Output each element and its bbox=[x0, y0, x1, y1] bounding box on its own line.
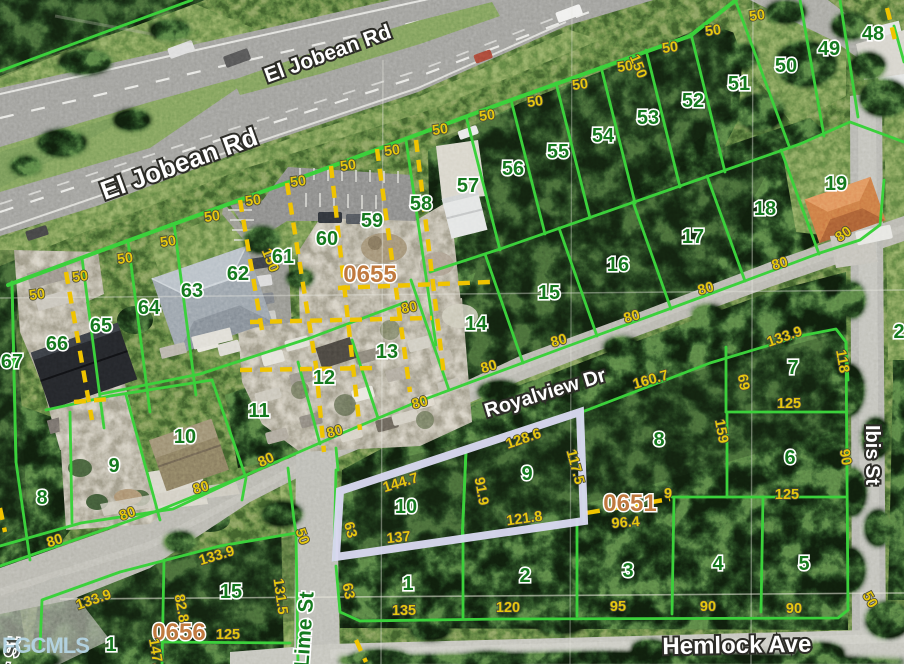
svg-text:12: 12 bbox=[313, 367, 335, 389]
svg-text:15: 15 bbox=[538, 282, 560, 304]
svg-text:57: 57 bbox=[457, 175, 479, 197]
svg-text:1: 1 bbox=[402, 573, 413, 595]
svg-text:50: 50 bbox=[203, 208, 221, 226]
svg-text:60: 60 bbox=[316, 228, 338, 250]
svg-text:67: 67 bbox=[1, 351, 23, 373]
svg-text:1: 1 bbox=[105, 634, 116, 656]
svg-text:6: 6 bbox=[784, 447, 795, 469]
svg-text:7: 7 bbox=[787, 357, 798, 379]
svg-text:52: 52 bbox=[682, 90, 704, 112]
svg-text:65: 65 bbox=[90, 315, 112, 337]
svg-text:8: 8 bbox=[36, 487, 47, 509]
svg-text:120: 120 bbox=[496, 600, 520, 616]
svg-text:53: 53 bbox=[637, 107, 659, 129]
svg-text:15: 15 bbox=[220, 581, 242, 603]
svg-text:0651: 0651 bbox=[603, 490, 656, 517]
svg-text:56: 56 bbox=[502, 158, 524, 180]
svg-text:Lime St: Lime St bbox=[290, 591, 318, 664]
svg-text:9: 9 bbox=[108, 455, 119, 477]
svg-text:80: 80 bbox=[400, 299, 419, 318]
svg-text:125: 125 bbox=[216, 627, 240, 643]
svg-text:50: 50 bbox=[339, 157, 357, 175]
svg-text:50: 50 bbox=[775, 55, 797, 77]
svg-text:54: 54 bbox=[592, 125, 615, 147]
svg-text:96.4: 96.4 bbox=[611, 514, 640, 532]
svg-text:51: 51 bbox=[728, 73, 750, 95]
svg-text:69: 69 bbox=[734, 373, 753, 392]
svg-text:9: 9 bbox=[521, 463, 532, 485]
svg-text:137: 137 bbox=[386, 529, 412, 547]
svg-text:50: 50 bbox=[289, 173, 307, 191]
svg-text:49: 49 bbox=[818, 38, 840, 60]
svg-text:50: 50 bbox=[661, 39, 679, 57]
svg-text:10: 10 bbox=[395, 496, 417, 518]
svg-text:Hemlock Ave: Hemlock Ave bbox=[662, 631, 811, 661]
svg-text:13: 13 bbox=[376, 341, 398, 363]
svg-text:50: 50 bbox=[28, 286, 46, 304]
svg-text:11: 11 bbox=[248, 400, 269, 422]
svg-text:19: 19 bbox=[825, 173, 847, 195]
svg-text:90: 90 bbox=[700, 599, 716, 615]
svg-text:14: 14 bbox=[465, 313, 488, 335]
svg-text:135: 135 bbox=[392, 603, 416, 619]
svg-text:5: 5 bbox=[798, 553, 809, 575]
svg-text:3: 3 bbox=[622, 560, 633, 582]
svg-text:55: 55 bbox=[547, 141, 569, 163]
svg-text:63: 63 bbox=[338, 582, 357, 601]
svg-text:50: 50 bbox=[571, 76, 589, 94]
svg-text:66: 66 bbox=[46, 333, 68, 355]
svg-text:50: 50 bbox=[71, 268, 89, 286]
svg-text:50: 50 bbox=[244, 192, 262, 210]
svg-text:125: 125 bbox=[777, 396, 801, 412]
svg-text:63: 63 bbox=[181, 280, 203, 302]
svg-text:16: 16 bbox=[607, 254, 629, 276]
svg-text:50: 50 bbox=[526, 93, 544, 111]
svg-text:0655: 0655 bbox=[343, 261, 396, 288]
svg-text:90: 90 bbox=[836, 448, 855, 467]
svg-text:50: 50 bbox=[159, 233, 177, 251]
svg-text:59: 59 bbox=[361, 210, 383, 232]
svg-text:50: 50 bbox=[431, 121, 449, 139]
svg-text:2: 2 bbox=[893, 321, 904, 343]
svg-text:8: 8 bbox=[653, 429, 664, 451]
svg-text:64: 64 bbox=[138, 297, 161, 319]
svg-text:50: 50 bbox=[383, 142, 401, 160]
svg-text:50: 50 bbox=[748, 7, 766, 25]
svg-text:48: 48 bbox=[862, 23, 884, 45]
svg-text:50: 50 bbox=[116, 250, 134, 268]
svg-text:58: 58 bbox=[410, 193, 432, 215]
svg-text:9: 9 bbox=[664, 486, 672, 502]
svg-text:61: 61 bbox=[272, 246, 294, 268]
svg-text:95: 95 bbox=[610, 599, 626, 615]
svg-text:17: 17 bbox=[682, 226, 704, 248]
svg-text:Ibis St: Ibis St bbox=[861, 425, 883, 485]
svg-text:90: 90 bbox=[786, 601, 802, 617]
svg-text:2: 2 bbox=[519, 565, 530, 587]
svg-text:50: 50 bbox=[704, 22, 722, 40]
svg-text:50: 50 bbox=[478, 107, 496, 125]
svg-text:4: 4 bbox=[712, 553, 724, 575]
svg-text:10: 10 bbox=[174, 426, 196, 448]
svg-text:62: 62 bbox=[227, 263, 249, 285]
svg-text:18: 18 bbox=[754, 198, 776, 220]
svg-text:125: 125 bbox=[775, 487, 799, 503]
svg-text:FGCMLS: FGCMLS bbox=[2, 633, 89, 658]
